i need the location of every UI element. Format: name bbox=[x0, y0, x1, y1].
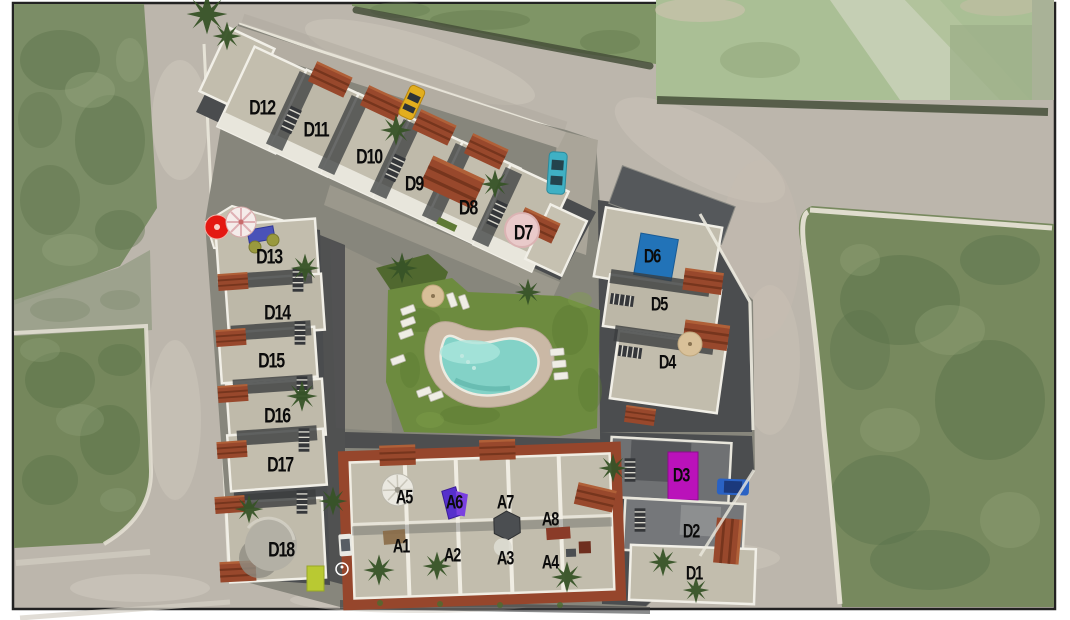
field-right bbox=[799, 206, 1054, 607]
white-car bbox=[338, 534, 353, 557]
striped-umbrella bbox=[226, 207, 256, 237]
site-plan-screenshot: D12 D11 D10 D9 D8 D7 D13 D14 D15 D16 D17… bbox=[0, 0, 1070, 620]
field-bottom-left bbox=[14, 326, 151, 548]
teal-car bbox=[547, 151, 568, 194]
buildings-a-block bbox=[343, 437, 620, 605]
inset-aerial-patch bbox=[655, 0, 1054, 112]
a5-spiral-stair bbox=[381, 473, 414, 506]
chartreuse-panel bbox=[307, 566, 324, 591]
buildings-d6-d4 bbox=[594, 166, 753, 432]
aerial-site-plan-image bbox=[0, 0, 1070, 620]
d7-pink-umbrella bbox=[505, 213, 539, 247]
d3-magenta-unit bbox=[668, 452, 698, 500]
